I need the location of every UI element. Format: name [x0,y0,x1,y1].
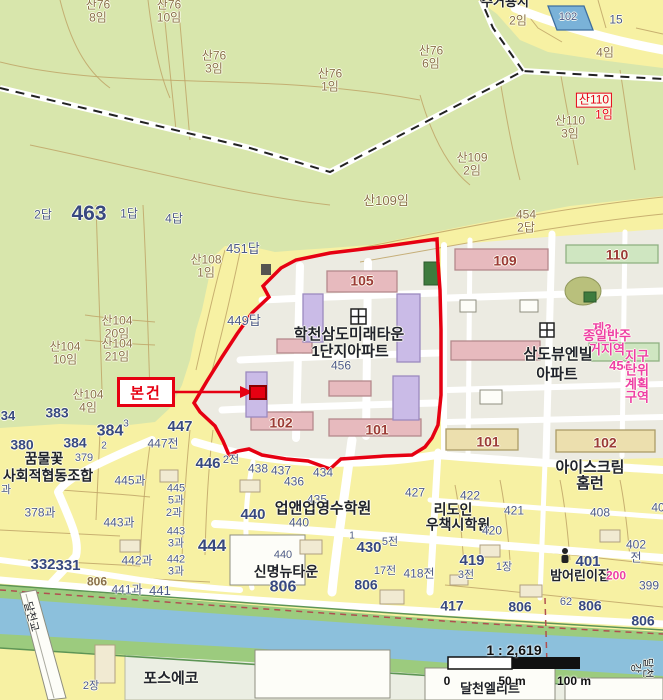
base-map [0,0,663,700]
scale-tick-100: 100 m [557,674,591,688]
subject-label-box: 본건 [117,377,175,407]
scale-tick-0: 0 [444,674,451,688]
subject-parcel-marker [250,386,266,399]
daycare-person-icon [562,548,569,563]
scale-bar-graphic [448,657,580,669]
building-grid-icon [540,323,554,337]
apartment-office-icon [351,309,366,324]
cadastral-map: 산76 8임산76 10임주거용지2임102154임산76 6임산76 3임산7… [0,0,663,700]
subject-label: 본건 [130,382,162,403]
scale-tick-50: 50 m [498,674,525,688]
scale-ratio: 1 : 2,619 [486,642,541,658]
